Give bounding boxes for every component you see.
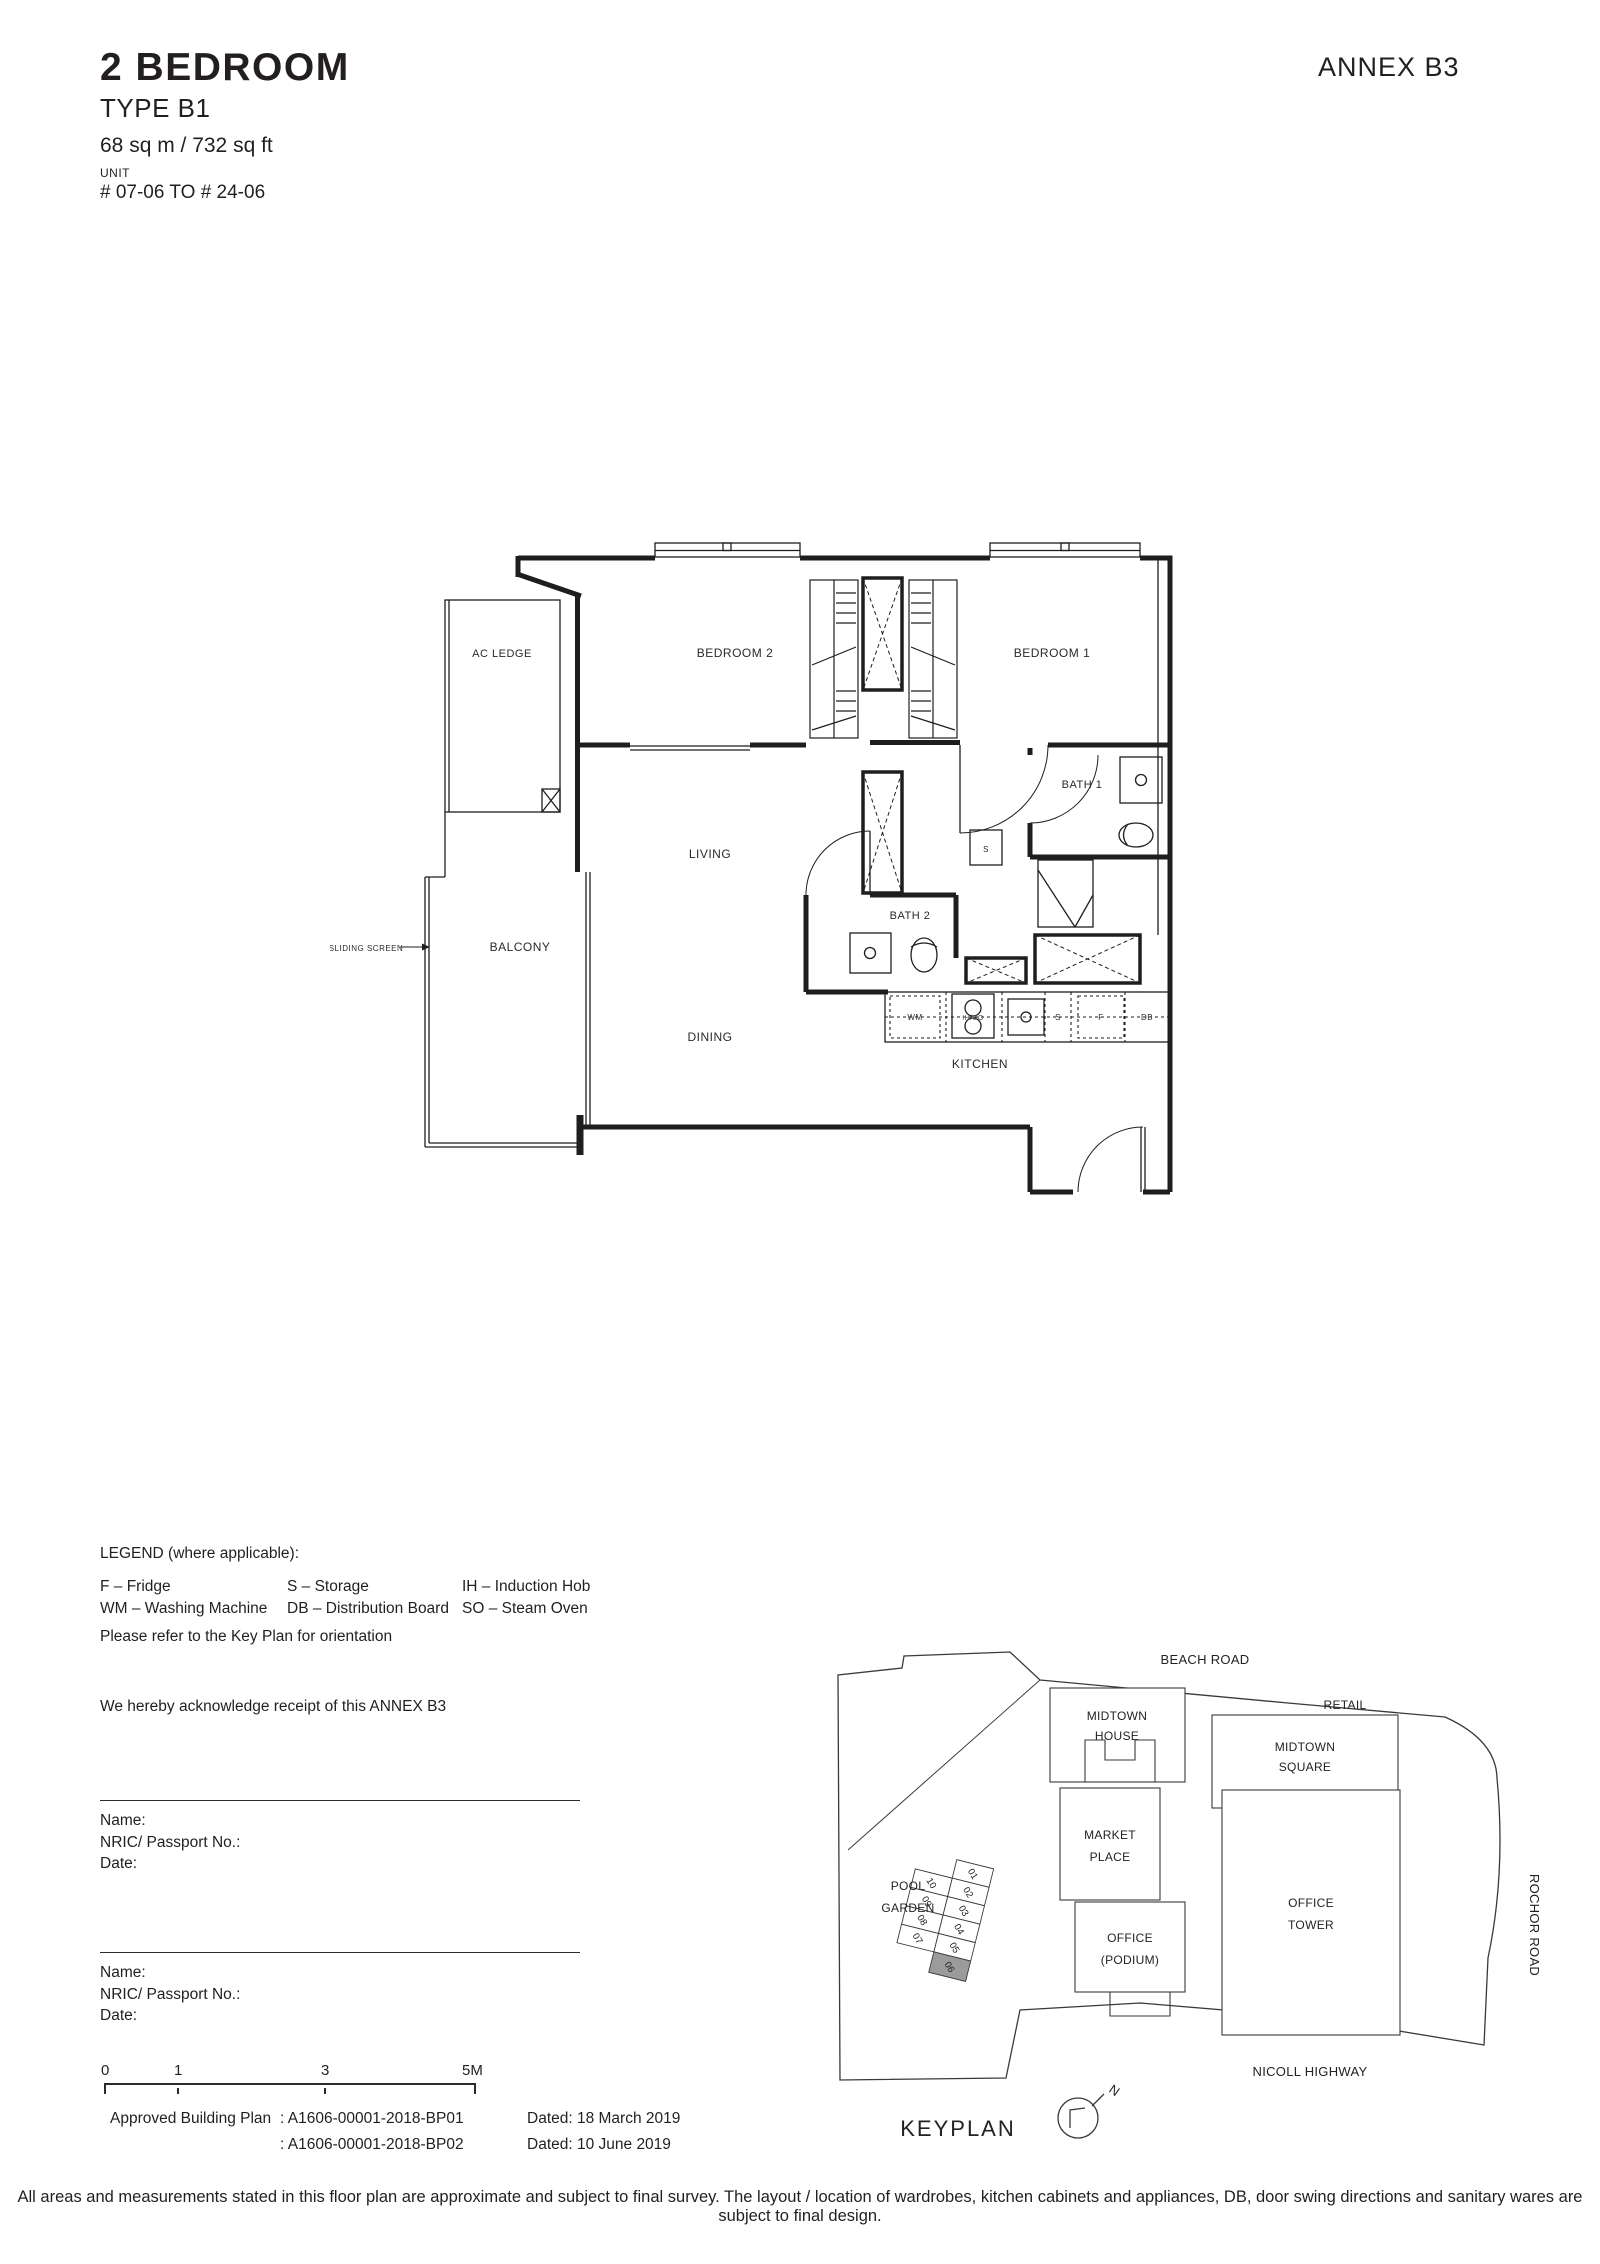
wall-wedge: [517, 556, 581, 596]
label-midtown-house: HOUSE: [1095, 1729, 1139, 1743]
ac-x-small: [966, 958, 1026, 983]
shower-door-fold: [1038, 870, 1093, 927]
floorplan-page: 2 BEDROOM TYPE B1 68 sq m / 732 sq ft UN…: [0, 0, 1600, 2264]
hob-burner-1: [965, 1000, 981, 1016]
entrance-door-leaf: [1141, 1127, 1145, 1192]
floorplan-drawing: AC LEDGE BEDROOM 2 BEDROOM 1 BATH 1 LIVI…: [330, 495, 1205, 1240]
window-bedroom1-tick: [1061, 543, 1069, 551]
ac-ledge-outline: [445, 600, 560, 812]
legend-item: IH – Induction Hob: [462, 1576, 632, 1598]
acknowledgement-note: We hereby acknowledge receipt of this AN…: [100, 1698, 446, 1716]
scale-bar-line: [105, 2083, 475, 2094]
balcony-screen: [425, 812, 580, 1147]
label-market-place: PLACE: [1090, 1850, 1131, 1864]
label-bath2: BATH 2: [890, 910, 931, 922]
area-label: 68 sq m / 732 sq ft: [100, 134, 350, 158]
legend-item: S – Storage: [287, 1576, 467, 1598]
legend-item: DB – Distribution Board: [287, 1598, 467, 1620]
label-hob: IH/SO: [962, 1015, 984, 1022]
approval-plan-1-no: : A1606-00001-2018-BP01: [280, 2106, 464, 2132]
balcony-sliding-door: [586, 872, 590, 1125]
scale-tick-5m: 5M: [462, 2062, 483, 2079]
type-label: TYPE B1: [100, 93, 350, 124]
label-storage: S: [1055, 1013, 1061, 1022]
wall-south: [583, 1127, 1170, 1192]
shaft-x-upper: [863, 578, 902, 690]
orientation-note: Please refer to the Key Plan for orienta…: [100, 1628, 392, 1646]
north-label: N: [1106, 2081, 1123, 2099]
label-living: LIVING: [689, 847, 731, 861]
date-label: Date:: [100, 1853, 240, 1875]
ac-ledge-vent-x: [542, 789, 560, 812]
wall-hall: [870, 743, 1170, 746]
label-rochor-road: ROCHOR ROAD: [1527, 1874, 1542, 1976]
nric-label: NRIC/ Passport No.:: [100, 1832, 240, 1854]
label-beach-road: BEACH ROAD: [1161, 1652, 1250, 1667]
building-office-podium: [1075, 1902, 1185, 1992]
header-block: 2 BEDROOM TYPE B1 68 sq m / 732 sq ft UN…: [100, 48, 350, 204]
label-office-tower: OFFICE: [1288, 1896, 1334, 1910]
disclaimer-text: All areas and measurements stated in thi…: [0, 2188, 1600, 2226]
nric-label: NRIC/ Passport No.:: [100, 1984, 240, 2006]
label-dining: DINING: [688, 1030, 733, 1044]
label-midtown-square: SQUARE: [1279, 1760, 1331, 1774]
keyplan-title: KEYPLAN: [900, 2116, 1016, 2141]
annex-label: ANNEX B3: [1318, 52, 1460, 83]
label-storage-room: S: [983, 845, 989, 854]
label-ac-ledge: AC LEDGE: [472, 648, 532, 660]
label-pool-garden: GARDEN: [881, 1901, 934, 1915]
name-label: Name:: [100, 1962, 240, 1984]
approval-plan-1-date: Dated: 18 March 2019: [527, 2106, 680, 2132]
keyplan-drawing: 01 02 03 04 05 06 10 09 08 07 BEACH ROAD…: [740, 1620, 1580, 2160]
label-nicoll-highway: NICOLL HIGHWAY: [1253, 2064, 1368, 2079]
wardrobe-bedroom2-hatch: [812, 580, 856, 738]
site-inner-boundary: [848, 1680, 1040, 1850]
label-office-podium: OFFICE: [1107, 1931, 1153, 1945]
bedroom1-door-arc: [960, 745, 1048, 833]
label-office-podium: (PODIUM): [1101, 1953, 1159, 1967]
label-pool-garden: POOL: [891, 1879, 926, 1893]
label-midtown-square: MIDTOWN: [1275, 1740, 1336, 1754]
signature-block-2: Name: NRIC/ Passport No.: Date:: [100, 1962, 240, 2027]
unit-caption: UNIT: [100, 166, 350, 180]
approval-plan-2-date: Dated: 10 June 2019: [527, 2132, 671, 2158]
bath1-toilet-seat: [1124, 824, 1129, 846]
legend-title: LEGEND (where applicable):: [100, 1545, 299, 1563]
scale-tick-3: 3: [321, 2062, 329, 2079]
window-bedroom2-tick: [723, 543, 731, 551]
signature-line[interactable]: [100, 1952, 580, 1953]
north-arrow-needle: [1070, 2094, 1104, 2128]
legend-col-2: S – Storage DB – Distribution Board: [287, 1576, 467, 1620]
approval-label: Approved Building Plan: [110, 2106, 271, 2132]
label-wm: WM: [907, 1013, 922, 1022]
bedroom2-sliding-door: [630, 746, 750, 750]
label-db: DB: [1141, 1013, 1153, 1022]
shaft-x-lower: [863, 772, 902, 893]
legend-item: WM – Washing Machine: [100, 1598, 285, 1620]
bath1-sink-drain: [1136, 775, 1147, 786]
ac-x-large: [1035, 935, 1140, 983]
label-bedroom1: BEDROOM 1: [1014, 646, 1091, 660]
bath2-door-arc: [806, 831, 870, 895]
legend-col-3: IH – Induction Hob SO – Steam Oven: [462, 1576, 632, 1620]
label-midtown-house: MIDTOWN: [1087, 1709, 1148, 1723]
bath1-sink: [1120, 757, 1162, 803]
shower-room: [1038, 860, 1093, 927]
legend-item: SO – Steam Oven: [462, 1598, 632, 1620]
page-title: 2 BEDROOM: [100, 48, 350, 87]
scale-bar: [100, 2082, 490, 2096]
building-market-place: [1060, 1788, 1160, 1900]
label-kitchen: KITCHEN: [952, 1057, 1008, 1071]
entrance-door-arc: [1078, 1127, 1143, 1192]
scale-tick-0: 0: [101, 2062, 109, 2079]
north-arrow-icon: [1058, 2098, 1098, 2138]
label-market-place: MARKET: [1084, 1828, 1136, 1842]
label-bedroom2: BEDROOM 2: [697, 646, 774, 660]
label-retail: RETAIL: [1324, 1698, 1367, 1712]
signature-line[interactable]: [100, 1800, 580, 1801]
date-label: Date:: [100, 2005, 240, 2027]
signature-block-1: Name: NRIC/ Passport No.: Date:: [100, 1810, 240, 1875]
scale-tick-1: 1: [174, 2062, 182, 2079]
label-office-tower: TOWER: [1288, 1918, 1334, 1932]
label-balcony: BALCONY: [490, 940, 551, 954]
legend-item: F – Fridge: [100, 1576, 285, 1598]
label-bath1: BATH 1: [1062, 779, 1103, 791]
approval-plan-2-no: : A1606-00001-2018-BP02: [280, 2132, 464, 2158]
legend-col-1: F – Fridge WM – Washing Machine: [100, 1576, 285, 1620]
name-label: Name:: [100, 1810, 240, 1832]
bath2-sink-drain: [865, 948, 876, 959]
bath2-sink: [850, 933, 891, 973]
label-sliding-screen: SLIDING SCREEN: [330, 944, 403, 953]
building-office-tower: [1222, 1790, 1400, 2035]
unit-range: # 07-06 TO # 24-06: [100, 182, 350, 204]
label-fridge: F: [1098, 1013, 1103, 1022]
wardrobe-bedroom1-hatch: [911, 580, 955, 738]
